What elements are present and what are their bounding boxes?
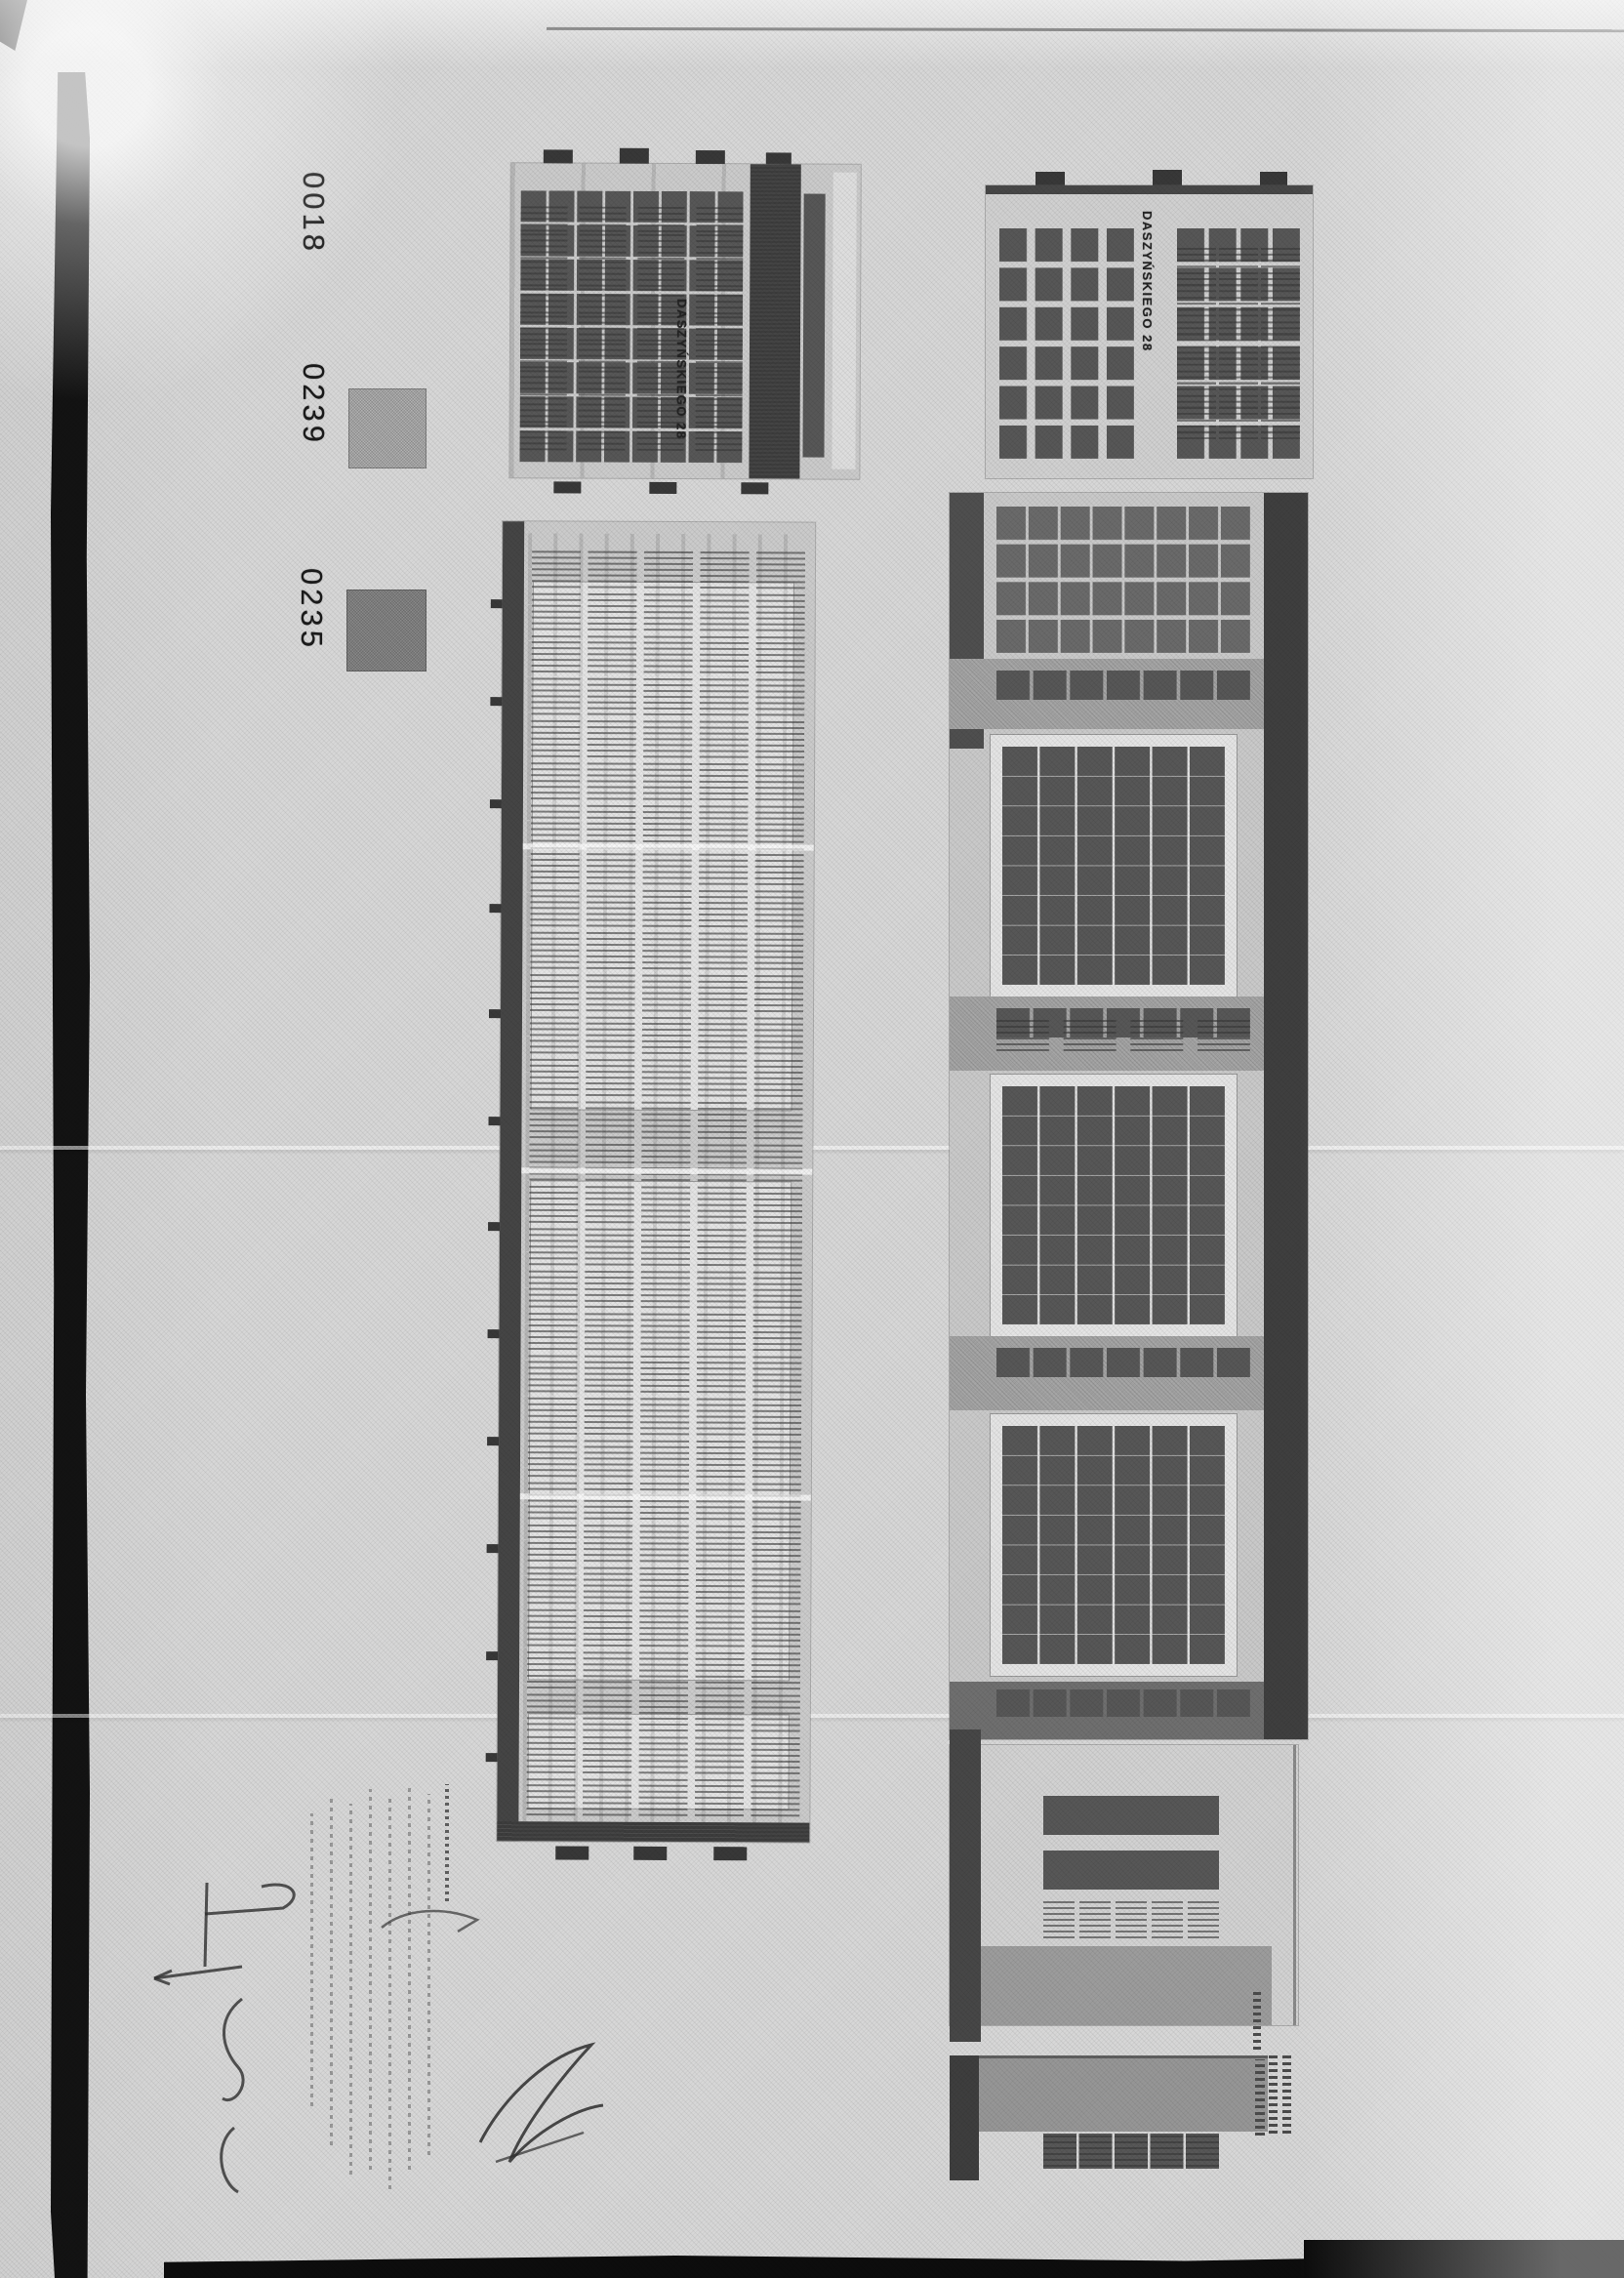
roof-stub: [544, 149, 573, 163]
building-address-label: DASZYŃSKIEGO 28: [1140, 211, 1155, 352]
chimney-tick: [491, 599, 503, 608]
ground-strip: [1264, 493, 1308, 1739]
window-grid: [1002, 1086, 1225, 1324]
legend-swatch-0239: [348, 388, 426, 468]
balcony-railing-grid: [1043, 1901, 1219, 1942]
legend-code-0235: 0235: [294, 568, 329, 651]
window-grid: [999, 228, 1134, 459]
chimney-tick: [490, 697, 502, 706]
window-grid: [996, 507, 1250, 653]
chimney-tick: [490, 799, 502, 808]
elevation-right-segment-top: DASZYŃSKIEGO 28: [986, 185, 1313, 478]
roof-stub: [1035, 172, 1065, 185]
roof-stub: [633, 1847, 667, 1860]
illegible-text-line: [1255, 2059, 1265, 2136]
base-band: [981, 1946, 1272, 2025]
balcony-railing-grid: [996, 1016, 1250, 1055]
signature-mark: [195, 1991, 273, 2196]
chimney-tick: [489, 1009, 501, 1018]
edge-line: [1293, 1745, 1296, 2025]
elevation-left-segment-top: DASZYŃSKIEGO 28: [509, 163, 860, 479]
signature-mark: [467, 2015, 613, 2181]
base-band: [497, 1821, 809, 1842]
chimney-tick: [489, 904, 501, 913]
illegible-text-line: [427, 1794, 430, 2155]
illegible-text-line: [1269, 2055, 1278, 2134]
elevation-right-segment-lower: [950, 1745, 1298, 2025]
balcony-railing-grid: [1177, 244, 1300, 439]
illegible-text-line: [369, 1789, 372, 2170]
roof-stub: [555, 1846, 589, 1859]
window-grid: [802, 194, 829, 458]
legend-code-0239: 0239: [296, 363, 331, 446]
stair-core-band: [749, 164, 800, 478]
illegible-text-line: [388, 1799, 391, 2189]
scan-top-edge-line: [547, 27, 1624, 32]
elevation-left: DASZYŃSKIEGO 28: [497, 145, 866, 1885]
illegible-text-line: [408, 1784, 411, 2170]
signature-mark: [376, 1898, 483, 1957]
elevation-right-segment-end: [950, 2055, 1298, 2182]
chimney-tick: [487, 1544, 499, 1553]
roof-stub: [553, 481, 581, 493]
balcony-railing-grid: [526, 547, 805, 1816]
roof-edge: [986, 185, 1313, 194]
balcony-railing-grid: [1043, 2136, 1219, 2169]
roof-stub: [649, 482, 676, 494]
roof-stub: [620, 148, 649, 164]
roof-stub: [1153, 170, 1182, 185]
scanned-sheet: 0018 0239 0235 DASZYŃSKIEGO 28: [0, 0, 1624, 2278]
scan-corner-mark: [0, 0, 27, 51]
scan-left-edge-bar: [51, 72, 90, 2278]
window-grid: [996, 1348, 1250, 1399]
roof-stub: [696, 150, 725, 164]
legend-swatch-0235: [346, 590, 426, 671]
stair-section-panel: [991, 1075, 1237, 1336]
elevation-right: DASZYŃSKIEGO 28: [950, 168, 1320, 2188]
illegible-text-line: [445, 1784, 449, 1901]
parapet-strip: [497, 521, 524, 1841]
illegible-text-line: [1253, 1991, 1261, 2050]
wall-band: [979, 2055, 1268, 2132]
window-grid: [996, 671, 1250, 719]
approval-stamp-illegible: [310, 1784, 467, 2194]
elevation-right-segment-long: [950, 493, 1308, 1739]
roof-stub: [713, 1847, 747, 1860]
section-gap: [523, 843, 814, 850]
stamp-text-illegible: [1253, 1991, 1300, 2137]
stair-section-panel: [991, 1414, 1237, 1676]
chimney-tick: [488, 1329, 500, 1338]
balcony-railing-grid: [520, 206, 744, 451]
window-grid: [1043, 1796, 1219, 1890]
end-wall-strip: [950, 2055, 979, 2180]
legend-code-0018: 0018: [296, 172, 331, 255]
roof-stub: [1260, 172, 1287, 185]
illegible-text-line: [330, 1794, 333, 2145]
stair-section-panel: [991, 735, 1237, 997]
end-wall-strip: [950, 1729, 981, 2042]
chimney-tick: [488, 1222, 500, 1231]
elevation-left-segment-long: [497, 521, 815, 1842]
white-edge-panel: [832, 173, 856, 469]
roof-stub: [766, 152, 792, 164]
roof-stub: [741, 482, 768, 494]
signature-mark: [146, 1869, 312, 1996]
building-address-label: DASZYŃSKIEGO 28: [674, 299, 690, 440]
scan-bottom-right-blob: [1304, 2240, 1624, 2278]
chimney-tick: [487, 1437, 499, 1445]
chimney-tick: [486, 1753, 498, 1762]
illegible-text-line: [1282, 2054, 1291, 2134]
chimney-tick: [486, 1651, 498, 1660]
window-grid: [1002, 1426, 1225, 1664]
section-gap: [521, 1167, 812, 1174]
window-grid: [996, 1689, 1250, 1732]
window-grid: [1002, 747, 1225, 985]
illegible-text-line: [349, 1804, 352, 2175]
chimney-tick: [489, 1117, 501, 1125]
